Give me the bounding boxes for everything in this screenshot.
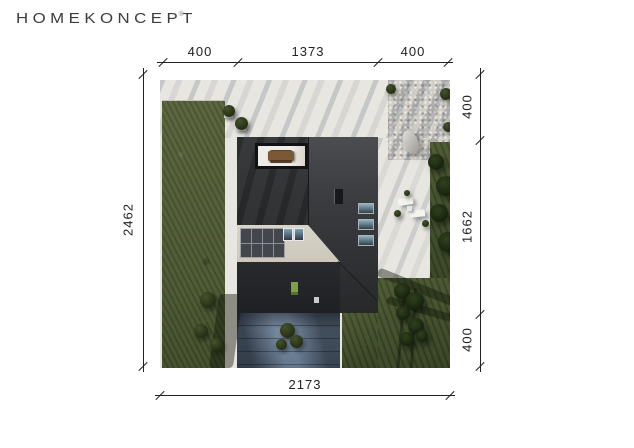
dining-chairs [270,160,292,163]
shrub [210,338,223,351]
lawn-below-house [342,313,378,368]
dimension-left-line [143,68,144,372]
skylight [358,219,374,230]
dimension-label-top-right: 400 [383,44,443,59]
dimension-label-right-bottom: 400 [460,310,475,370]
shrub [394,210,401,217]
entrance-door [291,282,298,295]
dimension-label-left: 2462 [121,190,136,250]
shrub [200,292,216,308]
terrace-floor [258,146,305,166]
side-table [407,206,412,211]
shrub [290,335,303,348]
roof-terrace-cutout [255,143,308,169]
shrub [276,339,287,350]
doorstep-light [314,297,319,303]
aerial-site-view [160,80,450,368]
dimension-label-right-top: 400 [460,77,475,137]
dimension-label-bottom: 2173 [275,377,335,392]
dimension-bottom-line [155,395,455,396]
brand-logo: HOMEKONCEPT® [16,10,184,28]
house-roof [237,137,378,313]
dimension-label-top-left: 400 [170,44,230,59]
shrub [386,84,396,94]
dimension-label-top-center: 1373 [278,44,338,59]
skylight [283,228,293,241]
shrub [443,122,450,132]
tree-canopy [396,306,410,320]
tree-canopy [400,332,414,346]
dimension-label-right-middle: 1662 [460,197,475,257]
dimension-top-line [157,62,453,63]
shrub [422,220,429,227]
tree-canopy [430,204,448,222]
shrub [194,324,208,338]
potted-plant [223,105,235,117]
dimension-right-line [480,68,481,372]
skylight [358,203,374,214]
solar-panels [240,228,285,258]
roof-vent [334,189,343,204]
skylight [294,228,304,241]
tree-canopy [428,154,444,170]
roof-ridge-line [308,137,309,229]
tree-canopy [416,330,428,342]
site-plan-page: HOMEKONCEPT® 400 1373 400 2462 400 1662 … [0,0,634,448]
driveway [237,313,340,368]
potted-plant [235,117,248,130]
shrub [440,88,450,100]
brand-logo-text: HOMEKONCEPT [16,10,197,27]
registered-trademark-icon: ® [179,11,184,18]
house-front-roof [237,262,340,313]
shrub [404,190,410,196]
tree-canopy [436,176,450,196]
tree-canopy [406,292,424,310]
skylight [358,235,374,246]
